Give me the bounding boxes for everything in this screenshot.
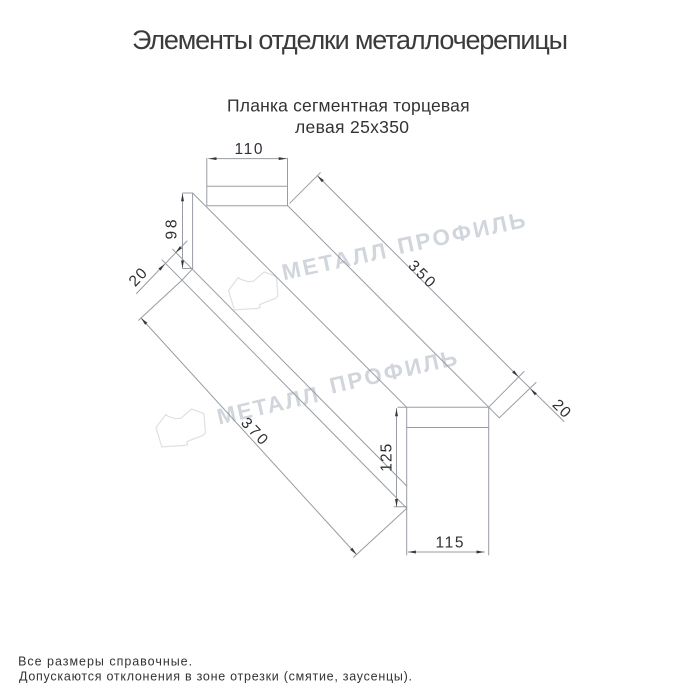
svg-text:110: 110 xyxy=(235,141,263,158)
svg-text:Допускаются отклонения в зоне: Допускаются отклонения в зоне отрезки (с… xyxy=(19,670,412,684)
svg-text:Планка сегментная торцевая: Планка сегментная торцевая xyxy=(227,96,470,116)
svg-text:Элементы отделки металлочерепи: Элементы отделки металлочерепицы xyxy=(132,25,568,55)
svg-text:Все размеры справочные.: Все размеры справочные. xyxy=(18,655,192,669)
svg-text:115: 115 xyxy=(436,535,464,552)
svg-text:левая 25х350: левая 25х350 xyxy=(295,117,409,137)
svg-text:125: 125 xyxy=(379,444,396,472)
